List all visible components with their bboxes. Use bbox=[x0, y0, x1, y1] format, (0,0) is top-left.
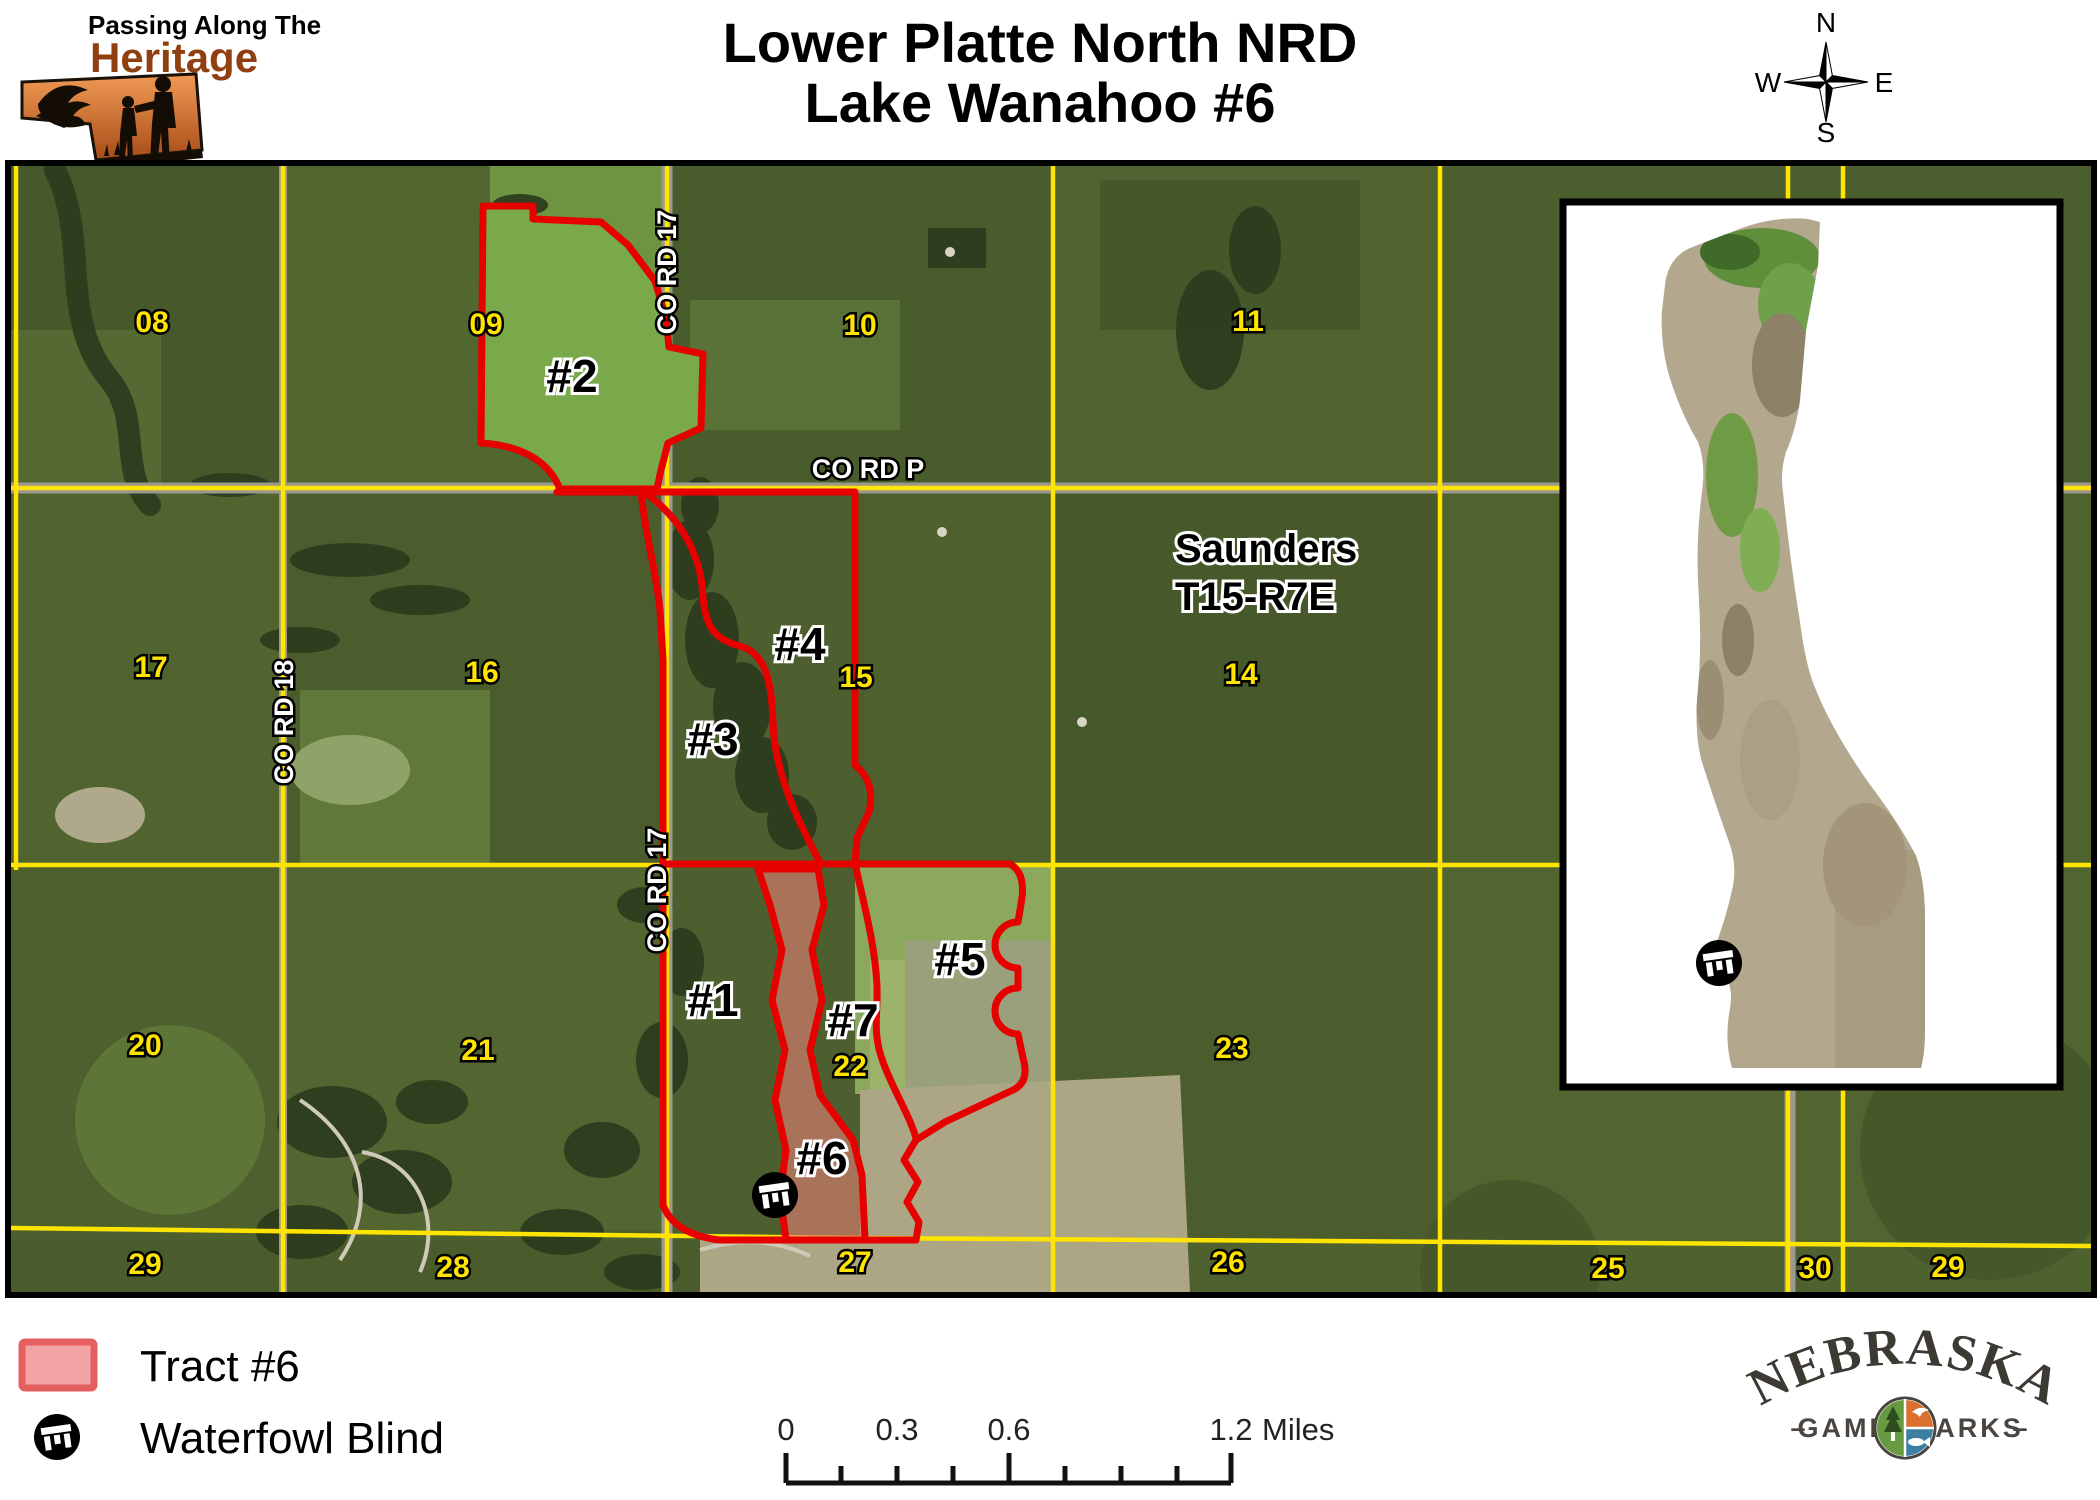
map-canvas: Lower Platte North NRD Lake Wanahoo #6 P… bbox=[0, 0, 2100, 1500]
tract-label-1: #1 bbox=[687, 974, 738, 1026]
compass-rose: N W E S bbox=[1755, 7, 1894, 148]
scale-bar: 0 0.3 0.6 1.2 Miles bbox=[777, 1412, 1334, 1483]
section-number: 29 bbox=[128, 1248, 161, 1281]
ngpc-logo: NEBRASKA – GAME PARKS – bbox=[1740, 1318, 2071, 1458]
region-label-line2: T15-R7E bbox=[1175, 575, 1335, 619]
compass-w-label: W bbox=[1755, 67, 1782, 98]
tract-6-inset bbox=[1563, 202, 2060, 1087]
section-number: 10 bbox=[843, 309, 876, 342]
road-label-co-rd-17-bottom: CO RD 17 bbox=[642, 828, 672, 953]
header: Lower Platte North NRD Lake Wanahoo #6 P… bbox=[22, 7, 1893, 167]
tract-label-6: #6 bbox=[796, 1132, 847, 1184]
tract-label-5: #5 bbox=[934, 933, 985, 985]
section-number: 15 bbox=[839, 661, 872, 694]
section-number: 22 bbox=[833, 1050, 866, 1083]
tract-label-7: #7 bbox=[827, 994, 878, 1046]
section-number: 30 bbox=[1798, 1252, 1831, 1285]
section-number: 20 bbox=[128, 1029, 161, 1062]
scale-tick-0: 0 bbox=[777, 1412, 794, 1447]
section-number: 23 bbox=[1215, 1032, 1248, 1065]
region-label-line1: Saunders bbox=[1175, 527, 1357, 571]
waterfowl-blind-icon-inset bbox=[1696, 940, 1742, 986]
tract-label-4: #4 bbox=[774, 618, 826, 670]
compass-e-label: E bbox=[1875, 67, 1894, 98]
scale-tick-12: 1.2 bbox=[1209, 1412, 1252, 1447]
section-number: 11 bbox=[1232, 305, 1264, 338]
road-label-co-rd-p: CO RD P bbox=[812, 454, 925, 484]
page-title-line2: Lake Wanahoo #6 bbox=[805, 71, 1276, 134]
page-title-line1: Lower Platte North NRD bbox=[723, 11, 1358, 74]
road-label-co-rd-17-top: CO RD 17 bbox=[652, 210, 682, 335]
scale-tick-06: 0.6 bbox=[987, 1412, 1030, 1447]
ngpc-dash-right: – bbox=[2012, 1413, 2027, 1443]
map-document: Lower Platte North NRD Lake Wanahoo #6 P… bbox=[0, 0, 2100, 1500]
heritage-logo: Passing Along The Heritage bbox=[22, 10, 321, 167]
legend-blind-icon bbox=[34, 1414, 80, 1460]
section-number: 14 bbox=[1224, 658, 1258, 691]
legend-blind-label: Waterfowl Blind bbox=[140, 1414, 444, 1463]
section-number: 25 bbox=[1591, 1252, 1624, 1285]
scale-tick-03: 0.3 bbox=[875, 1412, 918, 1447]
section-number: 09 bbox=[469, 308, 502, 341]
compass-n-label: N bbox=[1816, 7, 1836, 38]
section-number: 16 bbox=[465, 656, 498, 689]
section-number: 26 bbox=[1211, 1246, 1244, 1279]
aerial-map: 08 09 10 11 17 16 15 14 20 21 22 23 29 2… bbox=[11, 166, 2100, 1360]
legend: Tract #6 Waterfowl Blind bbox=[22, 1342, 444, 1463]
section-number: 29 bbox=[1931, 1251, 1964, 1284]
tract-label-2: #2 bbox=[546, 350, 597, 402]
compass-s-label: S bbox=[1817, 117, 1836, 148]
section-number: 08 bbox=[135, 306, 168, 339]
section-number: 28 bbox=[436, 1251, 469, 1284]
waterfowl-blind-icon bbox=[752, 1172, 798, 1218]
legend-tract6-label: Tract #6 bbox=[140, 1342, 300, 1391]
section-number: 17 bbox=[134, 651, 167, 684]
footer: Tract #6 Waterfowl Blind 0 0.3 0.6 bbox=[22, 1318, 2070, 1483]
legend-tract6-swatch bbox=[22, 1342, 94, 1388]
section-number: 21 bbox=[461, 1034, 494, 1067]
ngpc-emblem-icon bbox=[1875, 1398, 1935, 1458]
scale-unit-label: Miles bbox=[1262, 1412, 1334, 1447]
tract-label-3: #3 bbox=[687, 713, 738, 765]
section-number: 27 bbox=[838, 1246, 871, 1279]
road-label-co-rd-18: CO RD 18 bbox=[269, 660, 299, 785]
